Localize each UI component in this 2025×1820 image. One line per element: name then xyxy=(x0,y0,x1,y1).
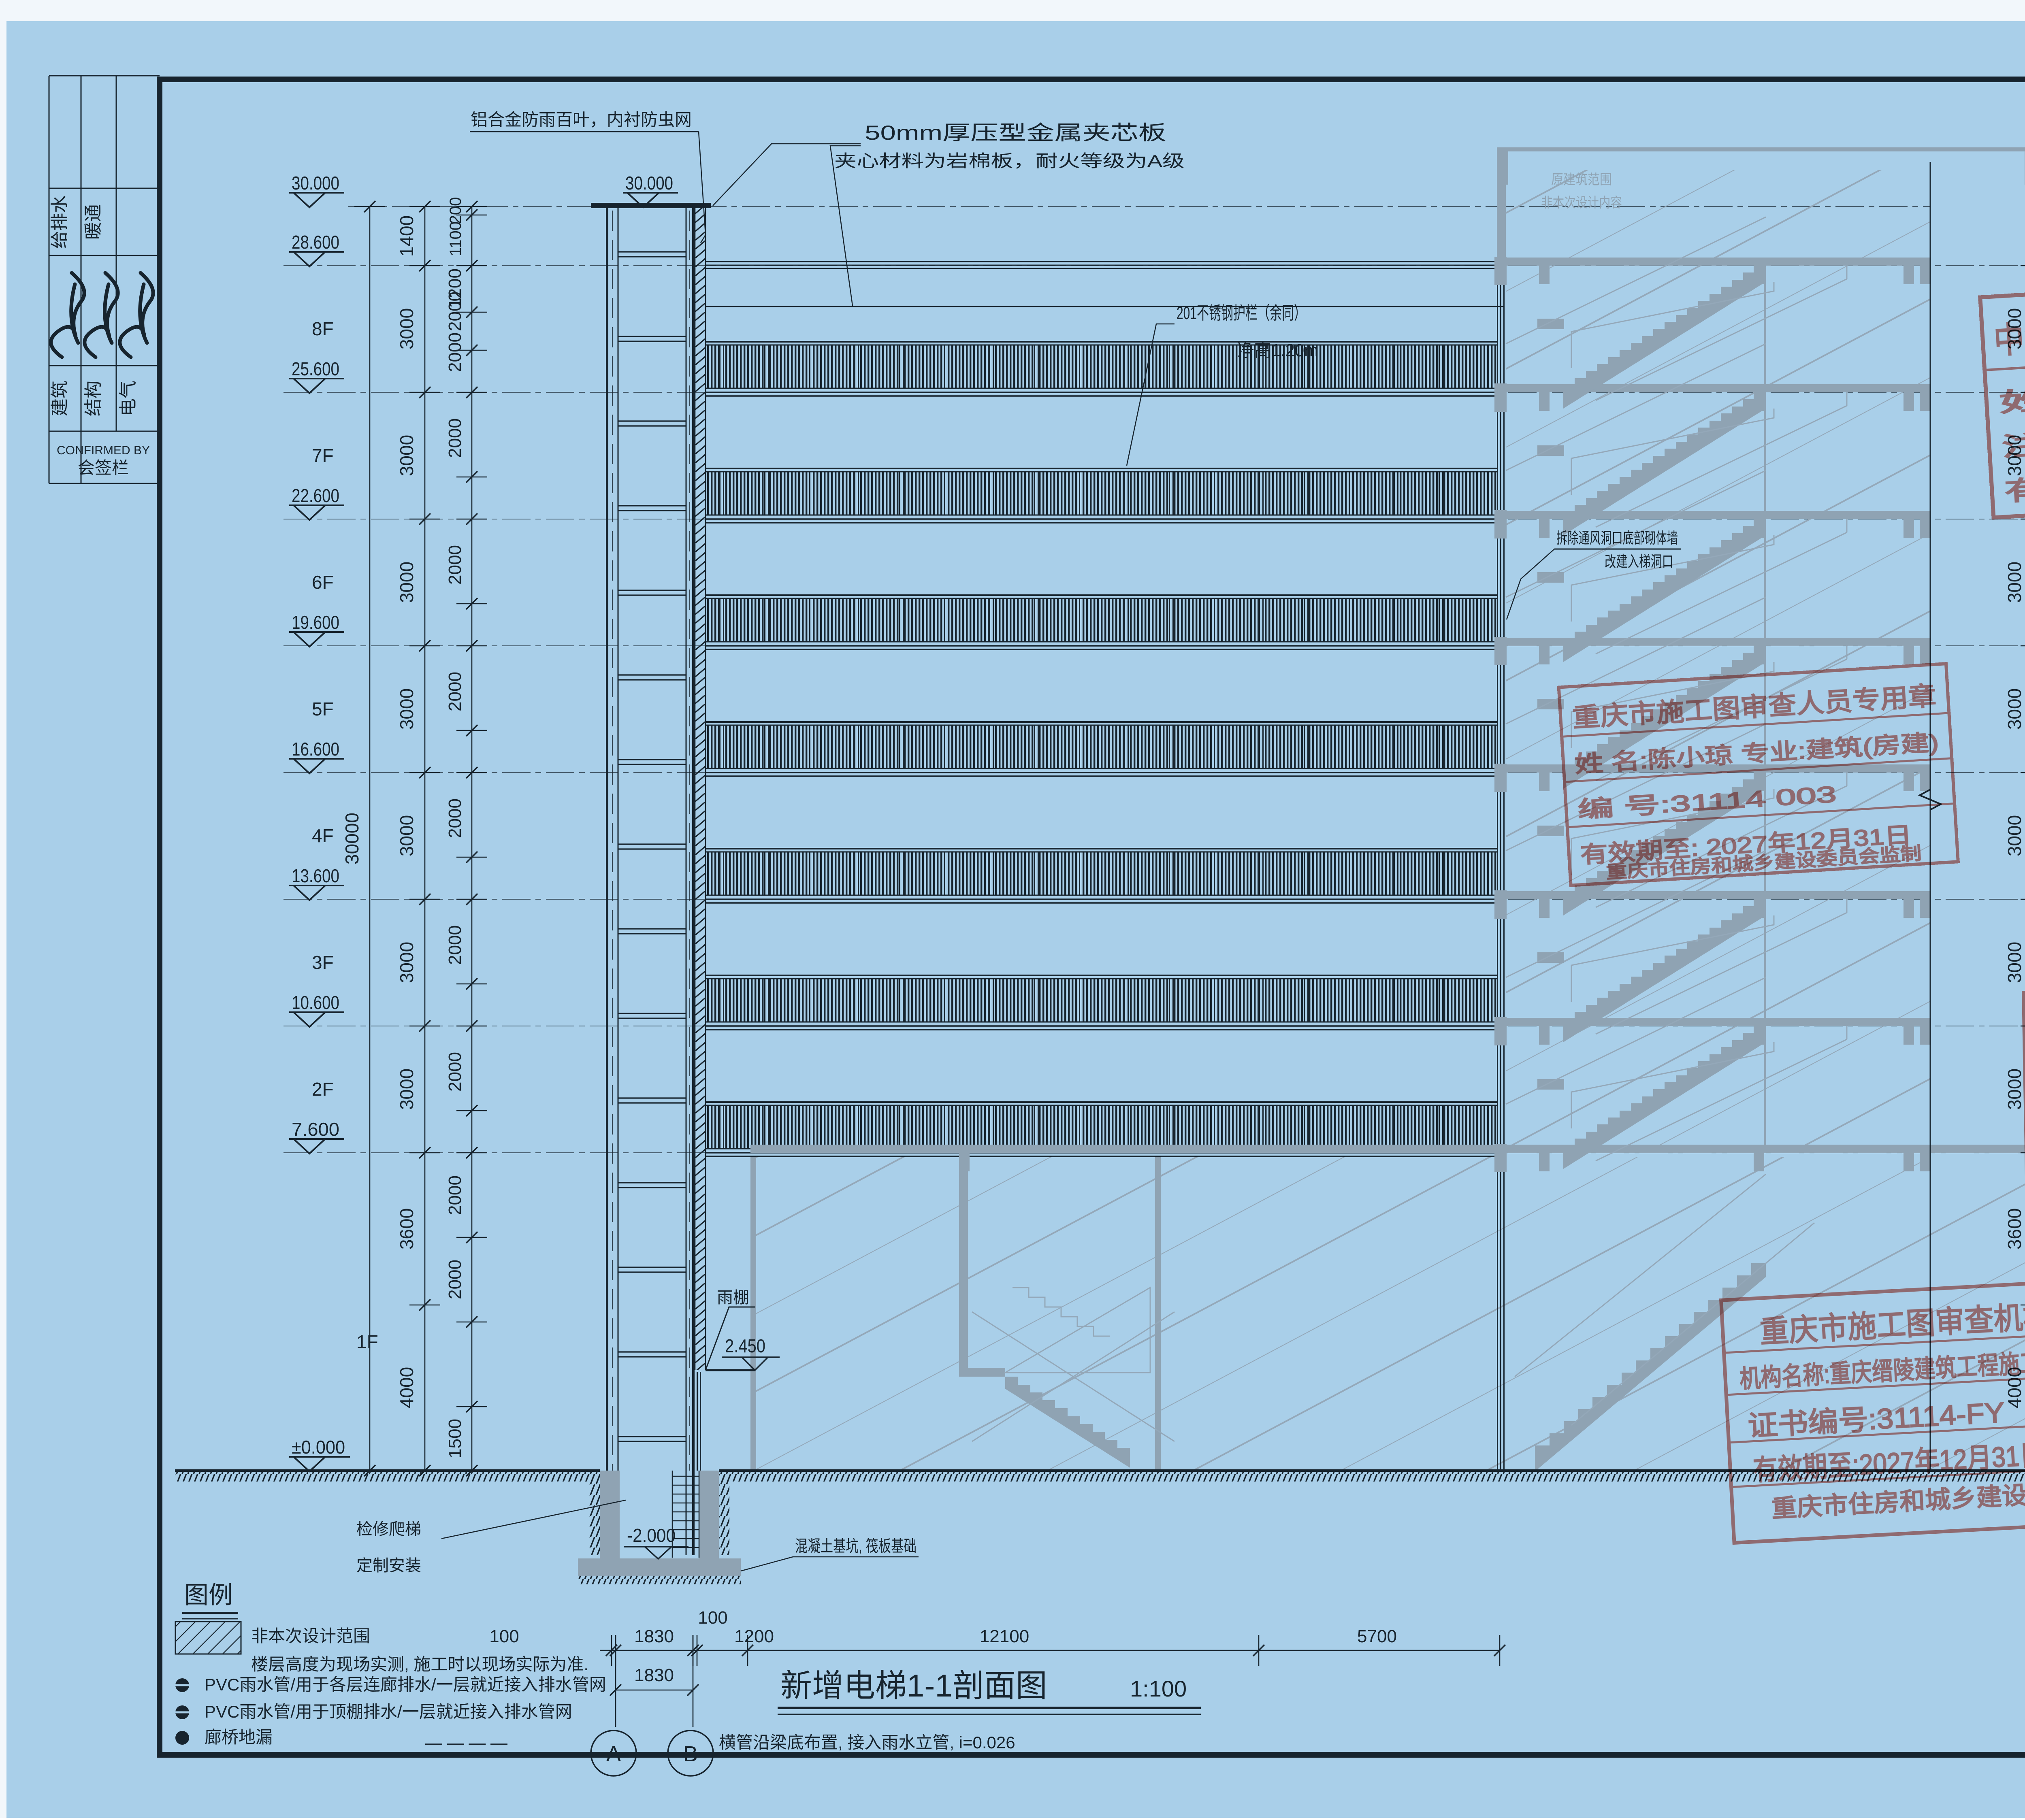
svg-text:2000: 2000 xyxy=(445,292,465,331)
svg-text:16.600: 16.600 xyxy=(292,739,339,760)
svg-text:混凝土基坑, 筏板基础: 混凝土基坑, 筏板基础 xyxy=(795,1537,917,1555)
svg-text:建筑: 建筑 xyxy=(50,381,70,416)
svg-text:定制安装: 定制安装 xyxy=(356,1557,421,1575)
svg-text:7F: 7F xyxy=(312,445,334,466)
svg-text:3000: 3000 xyxy=(396,815,417,856)
svg-text:新增电梯1-1剖面图: 新增电梯1-1剖面图 xyxy=(780,1668,1047,1703)
svg-text:3600: 3600 xyxy=(396,1208,417,1250)
svg-text:1830: 1830 xyxy=(634,1626,674,1646)
svg-text:13.600: 13.600 xyxy=(292,865,339,886)
svg-text:3000: 3000 xyxy=(2004,688,2025,730)
svg-text:3600: 3600 xyxy=(2004,1208,2025,1250)
svg-text:2000: 2000 xyxy=(445,798,465,838)
svg-text:PVC雨水管/用于顶棚排水/一层就近接入排水管网: PVC雨水管/用于顶棚排水/一层就近接入排水管网 xyxy=(205,1702,572,1721)
svg-text:铝合金防雨百叶，内衬防虫网: 铝合金防雨百叶，内衬防虫网 xyxy=(471,110,692,129)
svg-text:B: B xyxy=(683,1742,698,1766)
svg-text:非本次设计内容: 非本次设计内容 xyxy=(1541,195,1622,211)
svg-text:1100: 1100 xyxy=(447,221,465,256)
svg-text:PVC雨水管/用于各层连廊排水/一层就近接入排水管网: PVC雨水管/用于各层连廊排水/一层就近接入排水管网 xyxy=(205,1675,606,1694)
svg-text:1400: 1400 xyxy=(396,215,417,257)
svg-text:3000: 3000 xyxy=(2004,815,2025,856)
svg-text:— — — —: — — — — xyxy=(425,1733,507,1752)
svg-text:2000: 2000 xyxy=(445,545,465,585)
svg-text:±0.000: ±0.000 xyxy=(292,1437,345,1458)
svg-text:7.600: 7.600 xyxy=(292,1119,339,1140)
svg-text:10.600: 10.600 xyxy=(292,992,339,1013)
svg-text:CONFIRMED BY: CONFIRMED BY xyxy=(57,444,150,457)
svg-text:拆除通风洞口底部砌体墙: 拆除通风洞口底部砌体墙 xyxy=(1556,530,1678,547)
svg-text:30.000: 30.000 xyxy=(625,172,673,194)
svg-text:3000: 3000 xyxy=(396,1069,417,1110)
svg-text:25.600: 25.600 xyxy=(292,358,339,379)
svg-text:楼层高度为现场实测, 施工时以现场实际为准.: 楼层高度为现场实测, 施工时以现场实际为准. xyxy=(251,1655,588,1674)
svg-text:3000: 3000 xyxy=(2004,562,2025,603)
svg-text:给排水: 给排水 xyxy=(50,195,70,249)
svg-text:2000: 2000 xyxy=(445,1260,465,1299)
svg-text:1:100: 1:100 xyxy=(1130,1676,1187,1701)
svg-text:检修爬梯: 检修爬梯 xyxy=(356,1520,421,1538)
svg-text:3000: 3000 xyxy=(396,688,417,730)
svg-text:3000: 3000 xyxy=(396,942,417,983)
svg-text:净高1.20m: 净高1.20m xyxy=(1237,341,1318,360)
svg-text:改建入梯洞口: 改建入梯洞口 xyxy=(1605,553,1673,570)
svg-text:19.600: 19.600 xyxy=(292,612,339,633)
svg-text:200: 200 xyxy=(447,197,465,224)
svg-text:廊桥地漏: 廊桥地漏 xyxy=(205,1728,273,1747)
svg-text:12100: 12100 xyxy=(980,1626,1029,1646)
svg-text:2000: 2000 xyxy=(445,925,465,965)
svg-text:电气: 电气 xyxy=(118,381,138,416)
svg-text:原建筑范围: 原建筑范围 xyxy=(1551,172,1612,187)
svg-text:1F: 1F xyxy=(356,1331,378,1352)
svg-text:2000: 2000 xyxy=(445,332,465,372)
svg-text:-2.000: -2.000 xyxy=(627,1525,676,1546)
svg-text:1500: 1500 xyxy=(445,1419,465,1458)
svg-text:1830: 1830 xyxy=(634,1665,674,1685)
svg-text:22.600: 22.600 xyxy=(292,485,339,506)
svg-text:1200: 1200 xyxy=(734,1626,774,1646)
svg-text:5F: 5F xyxy=(312,698,334,719)
svg-text:8F: 8F xyxy=(312,318,334,339)
svg-text:201不锈钢护栏（余同）: 201不锈钢护栏（余同） xyxy=(1177,303,1306,323)
svg-text:2000: 2000 xyxy=(445,418,465,458)
svg-text:3000: 3000 xyxy=(2004,942,2025,983)
svg-text:非本次设计范围: 非本次设计范围 xyxy=(251,1626,370,1645)
svg-text:A: A xyxy=(606,1742,621,1766)
svg-text:暖通: 暖通 xyxy=(83,204,103,240)
svg-text:4F: 4F xyxy=(312,825,334,846)
svg-text:3000: 3000 xyxy=(2004,1069,2025,1110)
svg-text:2000: 2000 xyxy=(445,1052,465,1092)
svg-text:5700: 5700 xyxy=(1357,1626,1397,1646)
svg-text:100: 100 xyxy=(489,1626,519,1646)
svg-text:3000: 3000 xyxy=(396,562,417,603)
svg-text:28.600: 28.600 xyxy=(292,232,339,253)
svg-text:2F: 2F xyxy=(312,1079,334,1100)
svg-text:2000: 2000 xyxy=(445,1175,465,1215)
svg-text:6F: 6F xyxy=(312,572,334,593)
svg-text:50mm厚压型金属夹芯板: 50mm厚压型金属夹芯板 xyxy=(865,121,1166,144)
svg-text:100: 100 xyxy=(698,1608,727,1628)
svg-text:横管沿梁底布置, 接入雨水立管, i=0.026: 横管沿梁底布置, 接入雨水立管, i=0.026 xyxy=(719,1733,1015,1752)
svg-text:图例: 图例 xyxy=(184,1582,233,1609)
svg-text:30000: 30000 xyxy=(341,813,362,864)
svg-text:2000: 2000 xyxy=(445,672,465,711)
svg-text:4000: 4000 xyxy=(396,1367,417,1408)
svg-text:雨棚: 雨棚 xyxy=(717,1289,749,1307)
svg-text:30.000: 30.000 xyxy=(292,172,339,194)
svg-text:夹心材料为岩棉板，耐火等级为A级: 夹心材料为岩棉板，耐火等级为A级 xyxy=(834,151,1185,170)
svg-text:3F: 3F xyxy=(312,952,334,973)
svg-text:3000: 3000 xyxy=(396,435,417,476)
svg-text:2.450: 2.450 xyxy=(725,1335,765,1356)
svg-text:会签栏: 会签栏 xyxy=(78,458,129,477)
svg-text:结构: 结构 xyxy=(83,381,103,416)
svg-text:3000: 3000 xyxy=(396,308,417,349)
